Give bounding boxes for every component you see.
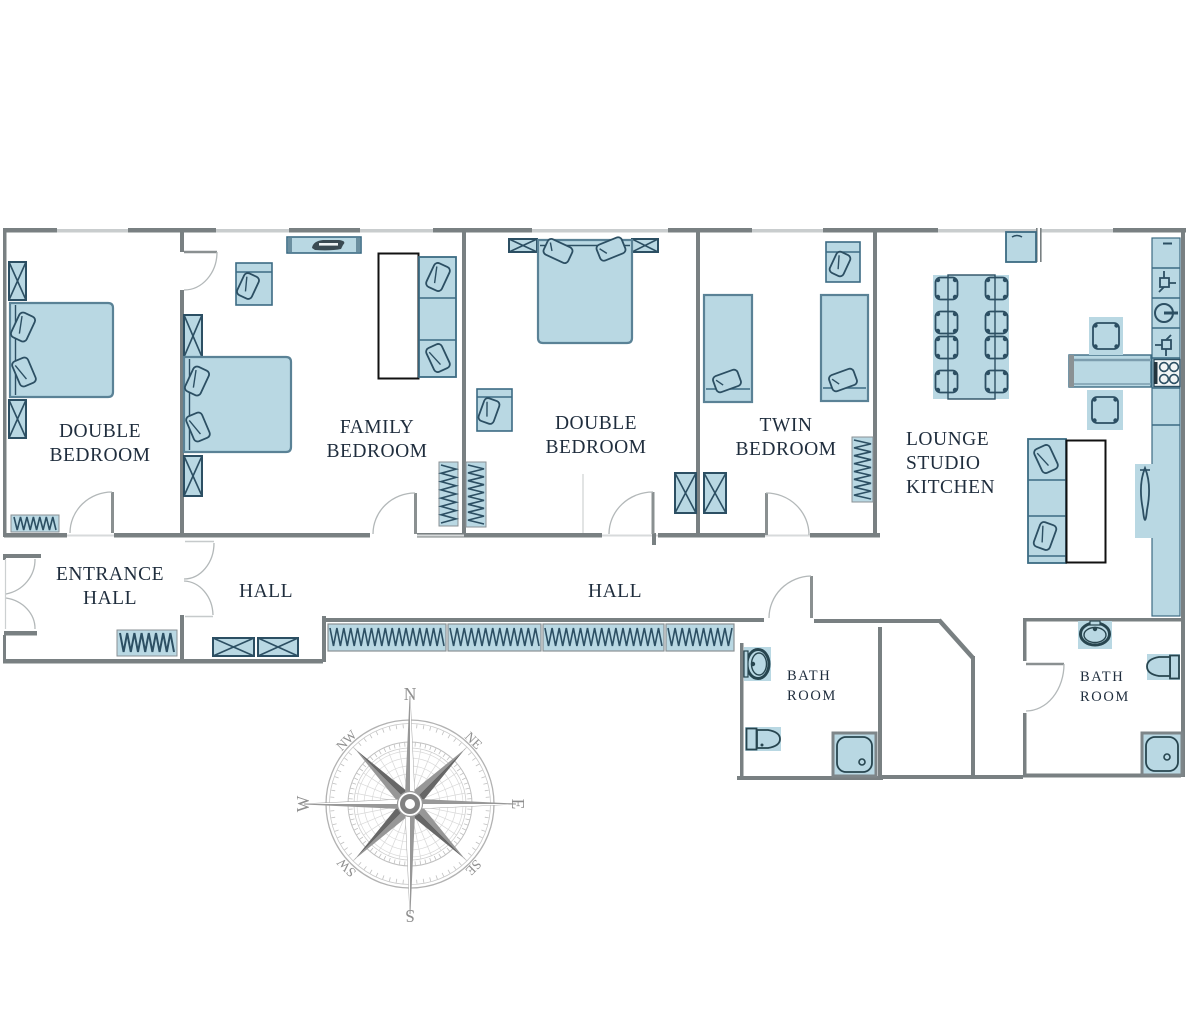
svg-text:HALL: HALL bbox=[239, 581, 293, 602]
svg-text:E: E bbox=[508, 799, 528, 810]
svg-text:S: S bbox=[405, 906, 415, 926]
svg-text:N: N bbox=[404, 684, 417, 704]
svg-text:HALL: HALL bbox=[588, 581, 642, 602]
svg-text:W: W bbox=[293, 795, 313, 812]
